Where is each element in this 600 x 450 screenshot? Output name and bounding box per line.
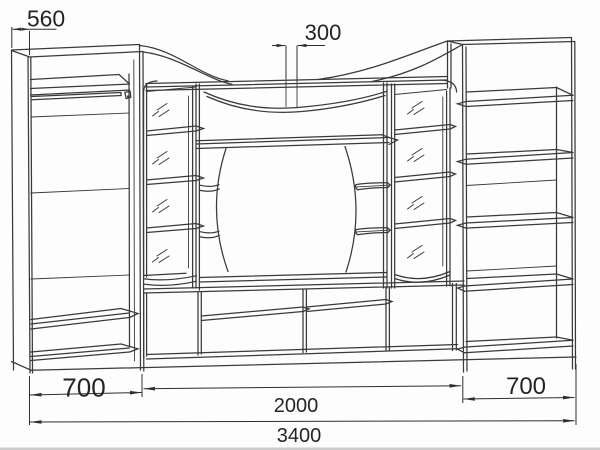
svg-text:700: 700 bbox=[62, 373, 105, 403]
svg-text:3400: 3400 bbox=[277, 425, 322, 447]
svg-text:300: 300 bbox=[305, 20, 342, 45]
svg-text:2000: 2000 bbox=[274, 395, 319, 417]
svg-text:560: 560 bbox=[27, 6, 65, 32]
svg-text:700: 700 bbox=[506, 373, 546, 400]
